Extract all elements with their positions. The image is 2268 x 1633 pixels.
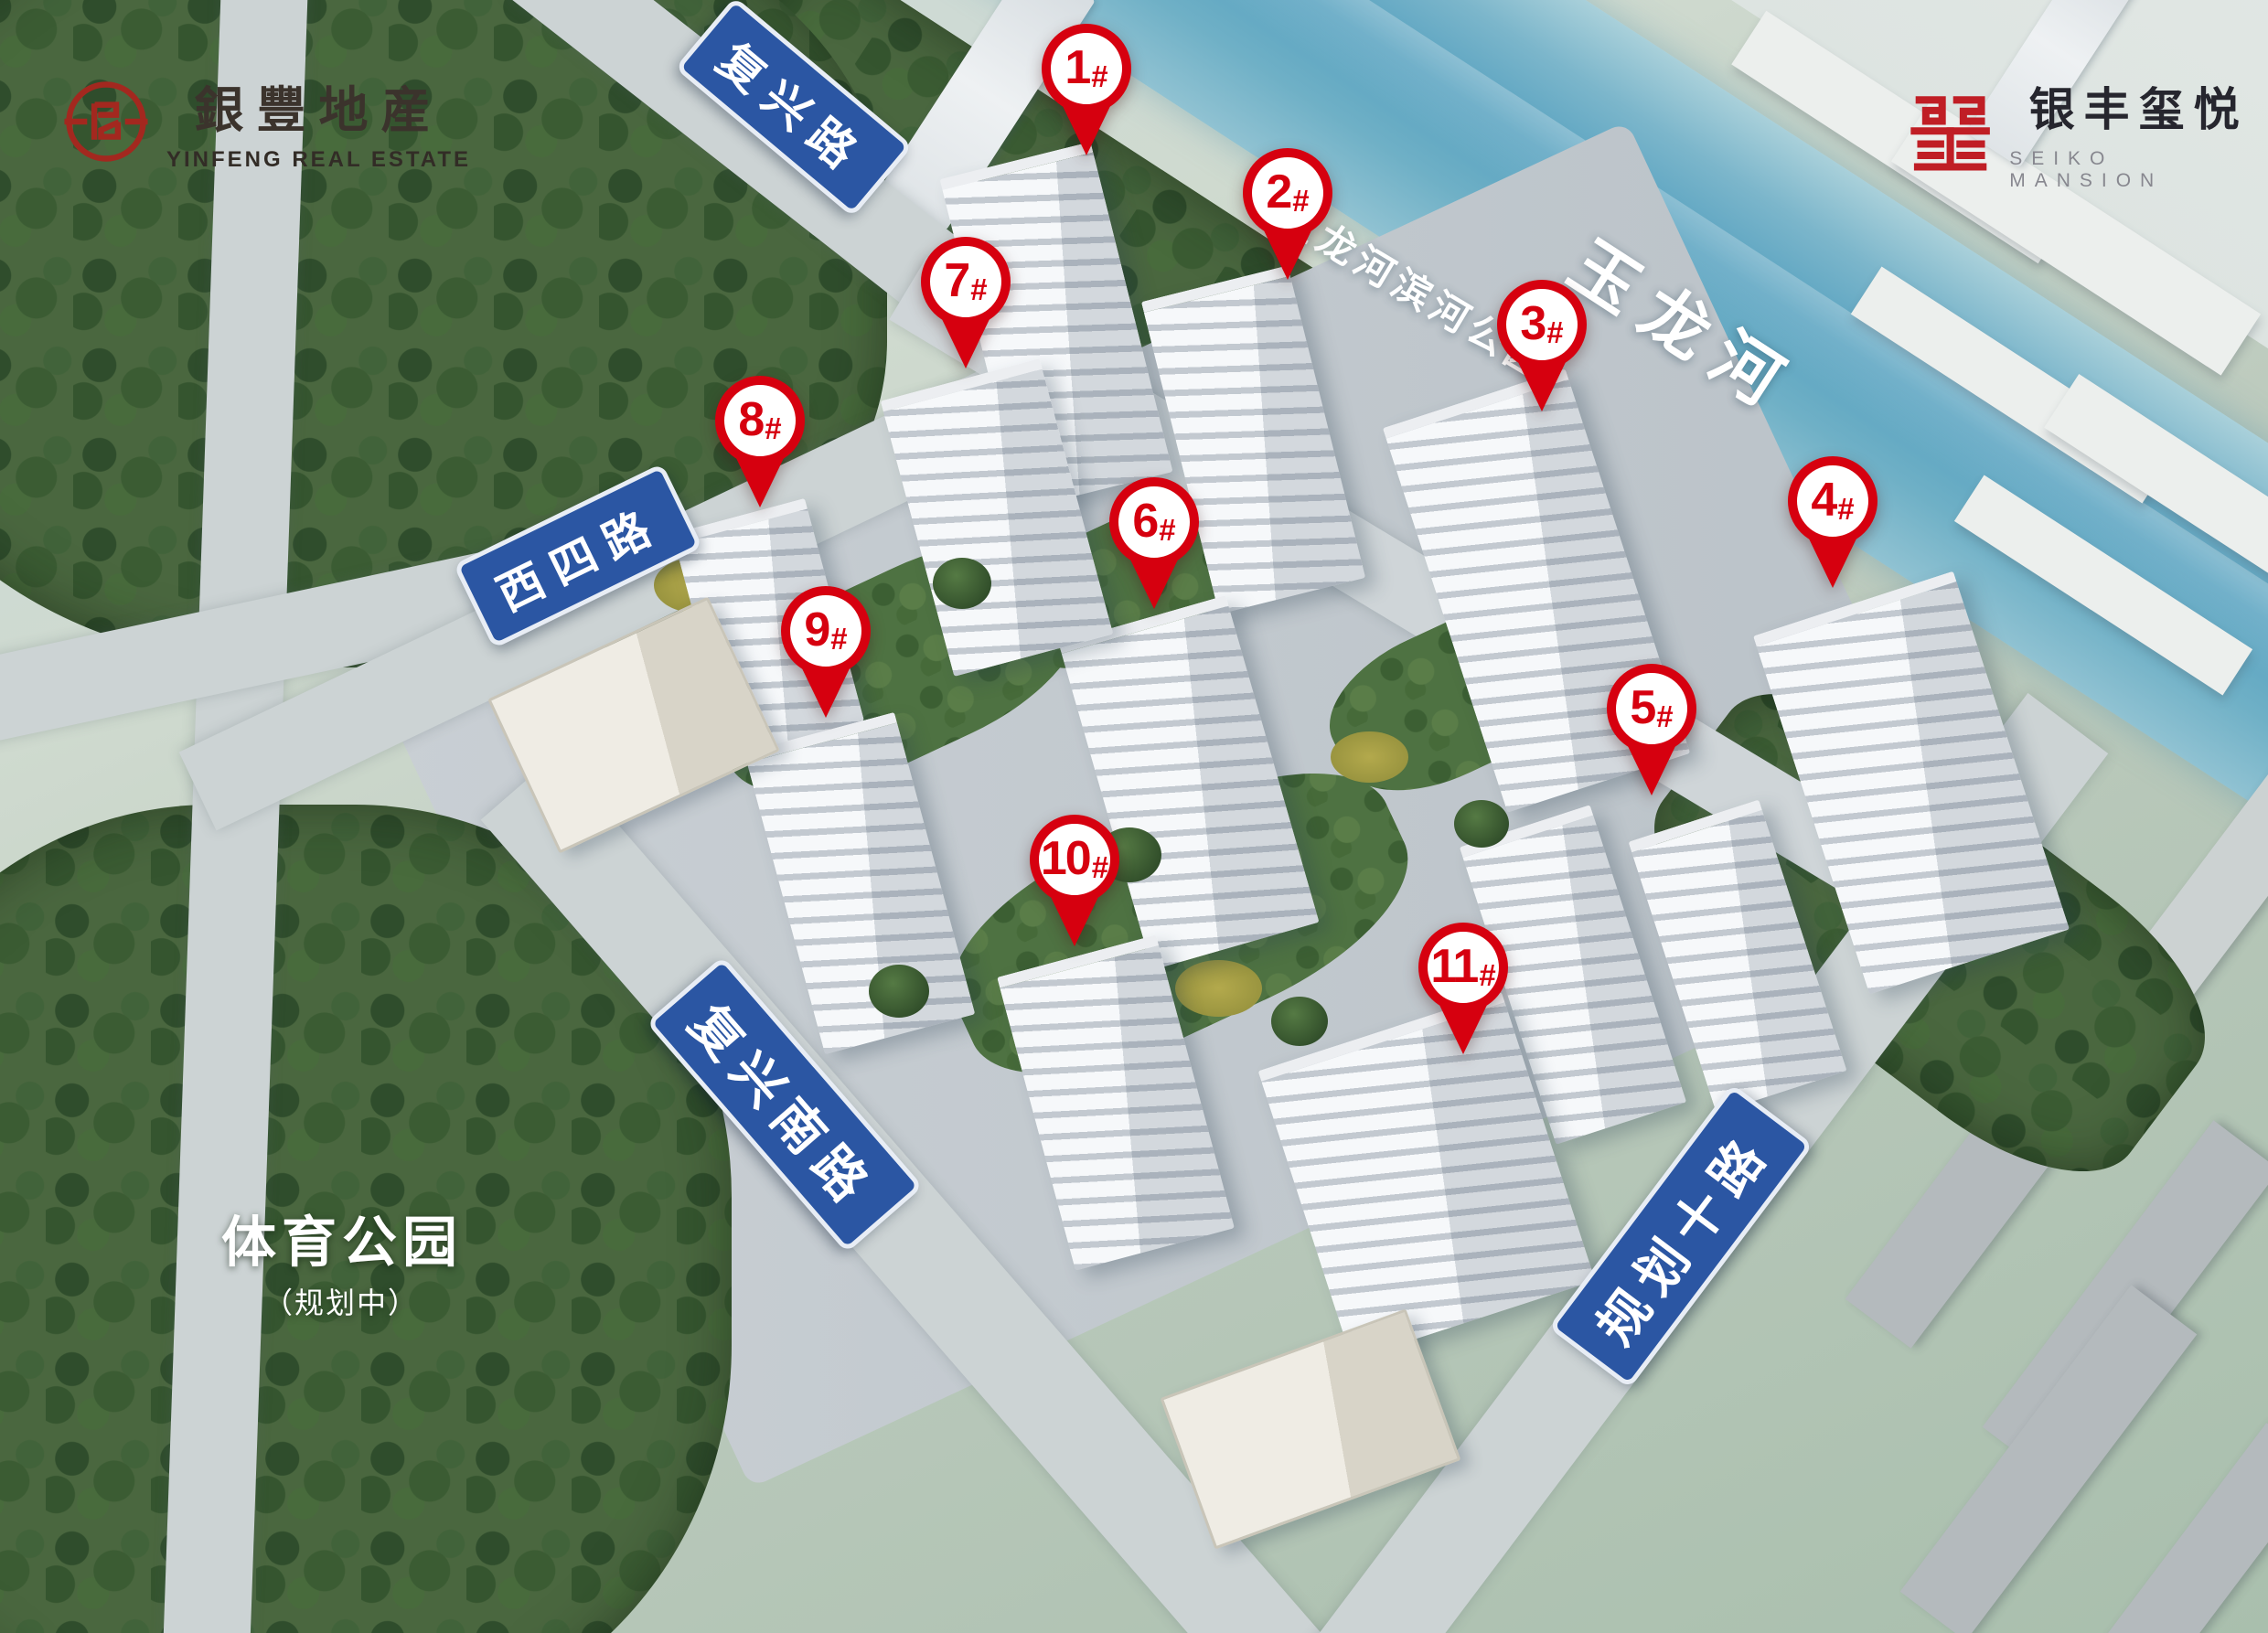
marker-hash: # bbox=[830, 622, 847, 656]
tree bbox=[1454, 800, 1509, 848]
marker-number: 9 bbox=[804, 603, 829, 656]
seiko-seal-icon bbox=[1910, 89, 1991, 176]
building-marker-6[interactable]: 6# bbox=[1108, 477, 1200, 611]
marker-number: 4 bbox=[1811, 474, 1835, 527]
building-marker-11[interactable]: 11# bbox=[1417, 923, 1509, 1056]
marker-pointer bbox=[1808, 537, 1857, 588]
developer-logo-text: 銀豐地産 YINFENG REAL ESTATE bbox=[166, 69, 471, 173]
marker-hash: # bbox=[1837, 492, 1854, 526]
marker-number: 8 bbox=[738, 393, 763, 446]
southeast-block-row bbox=[2102, 1423, 2268, 1633]
marker-hash: # bbox=[1292, 184, 1309, 218]
building-marker-2[interactable]: 2# bbox=[1242, 148, 1333, 282]
marker-circle: 11# bbox=[1418, 923, 1508, 1012]
marker-hash: # bbox=[1546, 315, 1563, 349]
autumn-trees bbox=[1175, 960, 1262, 1017]
project-logo-text: 银丰玺悦 SEIKO MANSION bbox=[2009, 73, 2268, 192]
autumn-trees bbox=[1331, 731, 1408, 783]
developer-logo: 銀豐地産 YINFENG REAL ESTATE bbox=[64, 69, 471, 173]
project-name-cn: 银丰玺悦 bbox=[2029, 73, 2249, 139]
marker-pointer bbox=[1129, 558, 1179, 609]
sports-park-label: 体育公园 bbox=[221, 1199, 463, 1278]
marker-number: 2 bbox=[1266, 165, 1290, 219]
marker-pointer bbox=[1263, 229, 1312, 280]
marker-pointer bbox=[941, 317, 990, 368]
marker-number: 7 bbox=[944, 254, 968, 307]
marker-circle: 7# bbox=[921, 237, 1011, 326]
project-logo: 银丰玺悦 SEIKO MANSION bbox=[1910, 73, 2268, 192]
marker-number: 1 bbox=[1064, 41, 1089, 94]
building-marker-4[interactable]: 4# bbox=[1787, 456, 1878, 590]
marker-circle: 4# bbox=[1788, 456, 1878, 546]
marker-hash: # bbox=[1479, 958, 1495, 992]
marker-circle: 1# bbox=[1042, 24, 1131, 113]
marker-circle: 8# bbox=[715, 376, 805, 465]
building-marker-1[interactable]: 1# bbox=[1041, 24, 1132, 157]
marker-number: 11 bbox=[1430, 940, 1477, 993]
marker-pointer bbox=[735, 456, 785, 507]
building-marker-10[interactable]: 10# bbox=[1029, 815, 1120, 948]
building-marker-3[interactable]: 3# bbox=[1496, 280, 1588, 413]
marker-circle: 2# bbox=[1243, 148, 1332, 238]
marker-hash: # bbox=[1656, 699, 1673, 733]
marker-number: 6 bbox=[1132, 495, 1157, 548]
marker-circle: 6# bbox=[1109, 477, 1199, 567]
marker-pointer bbox=[1627, 744, 1676, 795]
marker-pointer bbox=[1050, 895, 1099, 946]
yinfeng-seal-icon bbox=[64, 80, 148, 164]
marker-number: 5 bbox=[1630, 681, 1654, 734]
tree bbox=[1271, 997, 1328, 1046]
marker-circle: 5# bbox=[1607, 664, 1696, 753]
building-marker-8[interactable]: 8# bbox=[714, 376, 806, 509]
site-plan-rendering: 复兴路 西四路 复兴南路 规划十路 玉龙河 玉龙河滨河公园 体育公园 （规划中）… bbox=[0, 0, 2268, 1633]
marker-pointer bbox=[1439, 1003, 1488, 1054]
building-marker-9[interactable]: 9# bbox=[780, 586, 872, 720]
marker-hash: # bbox=[1091, 59, 1107, 93]
marker-pointer bbox=[801, 667, 850, 718]
marker-hash: # bbox=[970, 272, 987, 306]
building-marker-7[interactable]: 7# bbox=[920, 237, 1011, 370]
marker-circle: 10# bbox=[1030, 815, 1119, 904]
building-marker-5[interactable]: 5# bbox=[1606, 664, 1697, 797]
marker-pointer bbox=[1517, 360, 1567, 411]
sports-park-note: （规划中） bbox=[263, 1280, 419, 1322]
marker-circle: 9# bbox=[781, 586, 871, 676]
project-name-en: SEIKO MANSION bbox=[2009, 148, 2268, 192]
marker-hash: # bbox=[765, 411, 781, 445]
marker-hash: # bbox=[1092, 850, 1108, 884]
marker-number: 3 bbox=[1520, 297, 1545, 350]
developer-name-en: YINFENG REAL ESTATE bbox=[166, 147, 471, 173]
marker-circle: 3# bbox=[1497, 280, 1587, 369]
marker-pointer bbox=[1062, 104, 1111, 155]
tree bbox=[933, 558, 991, 609]
tree bbox=[869, 965, 929, 1018]
developer-name-cn: 銀豐地産 bbox=[195, 69, 444, 142]
marker-hash: # bbox=[1159, 513, 1175, 547]
marker-number: 10 bbox=[1041, 832, 1090, 885]
